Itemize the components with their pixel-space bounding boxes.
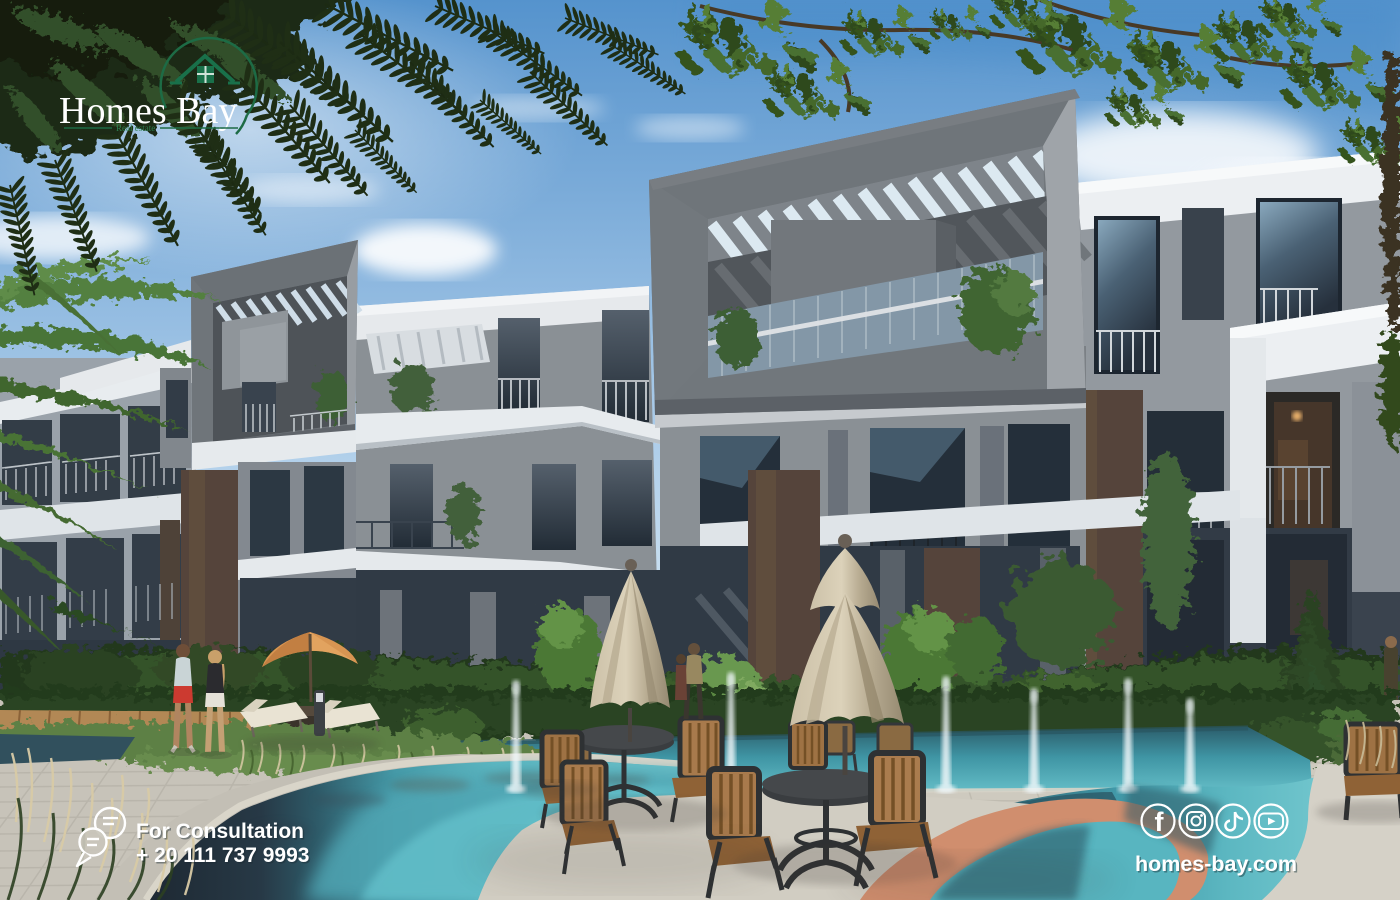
svg-text:homes-bay.com: homes-bay.com: [1135, 852, 1297, 876]
svg-text:Real estate: Real estate: [116, 123, 155, 133]
svg-text:For Consultation: For Consultation: [136, 820, 304, 843]
svg-text:f: f: [1155, 807, 1165, 837]
svg-text:+ 20 111 737 9993: + 20 111 737 9993: [136, 844, 309, 867]
